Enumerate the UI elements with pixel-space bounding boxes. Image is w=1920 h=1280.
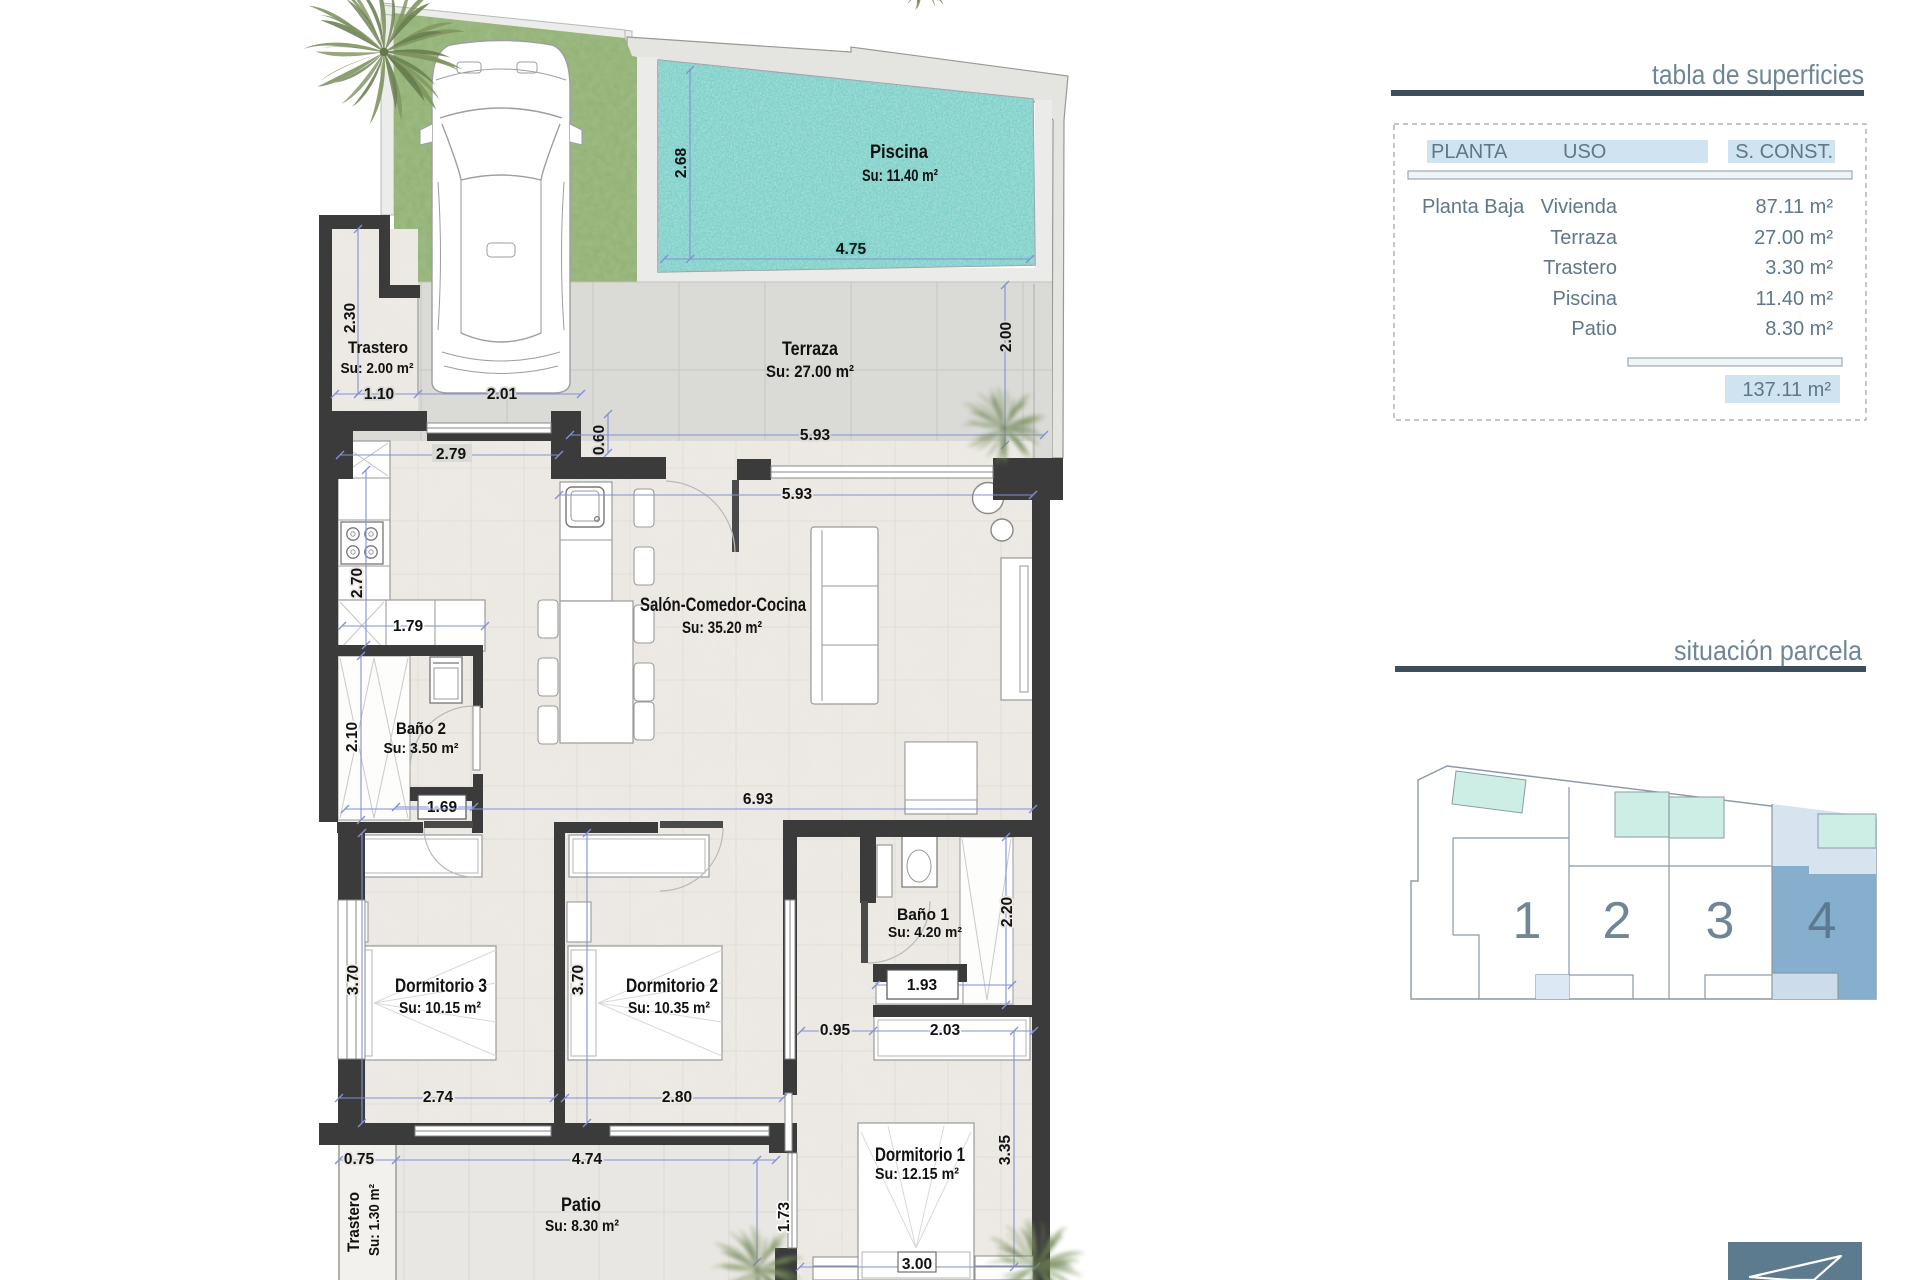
svg-text:Patio: Patio [1571,318,1617,340]
svg-text:Salón-Comedor-Cocina: Salón-Comedor-Cocina [640,595,806,616]
svg-text:Su: 2.00 m²: Su: 2.00 m² [341,361,414,377]
svg-text:Vivienda: Vivienda [1541,196,1618,218]
svg-text:2.00: 2.00 [998,322,1015,352]
svg-text:Su: 8.30 m²: Su: 8.30 m² [545,1218,619,1235]
svg-text:Baño 2: Baño 2 [396,720,446,738]
svg-text:3.30 m²: 3.30 m² [1765,257,1833,279]
svg-text:2.70: 2.70 [349,568,366,598]
svg-text:3.70: 3.70 [570,965,587,995]
svg-text:Su: 27.00 m²: Su: 27.00 m² [766,363,854,381]
svg-text:87.11 m²: 87.11 m² [1756,196,1834,218]
svg-text:Planta Baja: Planta Baja [1422,196,1525,218]
svg-text:1.79: 1.79 [393,618,424,635]
svg-text:2.30: 2.30 [342,303,359,333]
svg-text:Su: 3.50 m²: Su: 3.50 m² [384,741,459,757]
svg-text:Su: 4.20 m²: Su: 4.20 m² [888,925,962,941]
svg-text:2.01: 2.01 [487,386,518,403]
svg-text:1: 1 [1513,892,1542,950]
svg-text:Patio: Patio [561,1195,601,1216]
svg-text:0.60: 0.60 [591,425,608,455]
svg-text:137.11 m²: 137.11 m² [1742,379,1831,401]
svg-text:Dormitorio 2: Dormitorio 2 [626,976,718,997]
svg-text:Su: 12.15 m²: Su: 12.15 m² [875,1166,959,1183]
svg-text:3.00: 3.00 [902,1256,932,1273]
svg-text:Su: 10.15 m²: Su: 10.15 m² [399,1000,481,1017]
svg-text:Dormitorio 3: Dormitorio 3 [395,976,487,997]
svg-text:0.95: 0.95 [820,1022,851,1039]
svg-text:Su: 10.35 m²: Su: 10.35 m² [628,1000,710,1017]
svg-text:Piscina: Piscina [870,142,928,163]
svg-text:5.93: 5.93 [782,486,813,503]
svg-text:3.70: 3.70 [345,965,362,995]
svg-text:2.68: 2.68 [673,148,690,179]
svg-text:PLANTA: PLANTA [1431,141,1508,163]
svg-text:8.30 m²: 8.30 m² [1765,318,1833,340]
svg-text:4: 4 [1808,892,1837,950]
svg-text:2.20: 2.20 [999,897,1016,927]
svg-text:4.75: 4.75 [836,241,867,258]
svg-text:Trastero: Trastero [1543,257,1617,279]
svg-text:tabla de superficies: tabla de superficies [1652,59,1864,90]
svg-text:2.80: 2.80 [662,1089,692,1106]
svg-text:2.74: 2.74 [423,1089,454,1106]
svg-text:4.74: 4.74 [572,1151,603,1168]
svg-text:Su: 11.40 m²: Su: 11.40 m² [862,167,938,185]
svg-text:0.75: 0.75 [344,1151,375,1168]
svg-text:2.03: 2.03 [930,1022,961,1039]
svg-text:3.35: 3.35 [997,1135,1014,1166]
svg-text:situación parcela: situación parcela [1674,635,1862,666]
svg-text:2.79: 2.79 [436,446,467,463]
svg-text:Dormitorio 1: Dormitorio 1 [875,1145,965,1166]
svg-text:2.10: 2.10 [344,722,361,752]
svg-text:11.40 m²: 11.40 m² [1756,288,1834,310]
svg-text:Piscina: Piscina [1553,288,1618,310]
svg-text:1.73: 1.73 [776,1202,793,1233]
svg-text:Su: 1.30 m²: Su: 1.30 m² [367,1184,383,1256]
svg-text:S. CONST.: S. CONST. [1735,141,1833,163]
svg-text:1.93: 1.93 [907,977,938,994]
svg-text:USO: USO [1563,141,1606,163]
svg-text:1.10: 1.10 [364,386,394,403]
svg-text:1.69: 1.69 [427,799,458,816]
svg-text:Trastero: Trastero [348,338,408,357]
svg-text:Baño 1: Baño 1 [897,906,949,924]
svg-text:2: 2 [1603,892,1632,950]
svg-text:Trastero: Trastero [345,1192,363,1252]
svg-text:Terraza: Terraza [782,339,838,360]
svg-text:27.00 m²: 27.00 m² [1754,227,1833,249]
svg-text:3: 3 [1706,892,1735,950]
svg-text:6.93: 6.93 [743,791,774,808]
svg-text:Terraza: Terraza [1550,227,1618,249]
svg-text:5.93: 5.93 [800,427,831,444]
svg-text:Su: 35.20 m²: Su: 35.20 m² [682,619,762,637]
